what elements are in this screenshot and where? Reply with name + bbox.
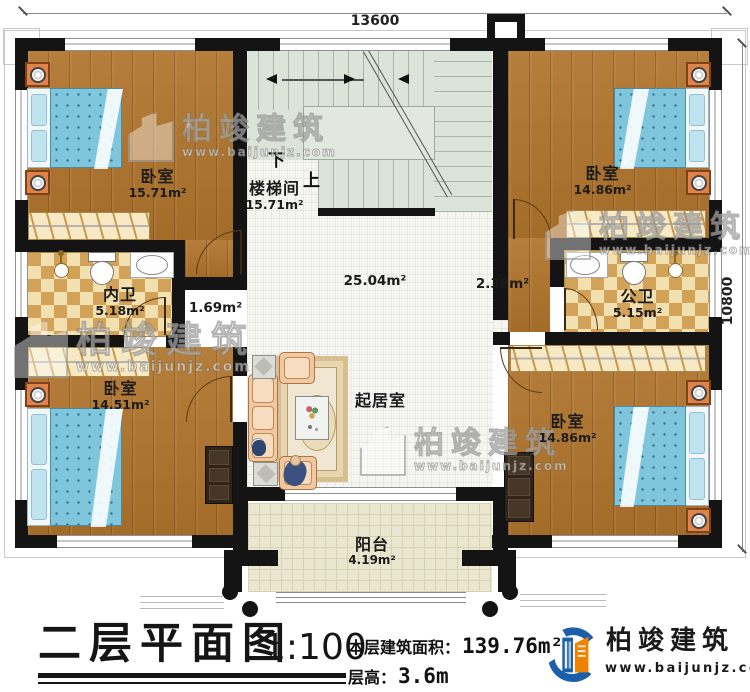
door-leaf [230, 376, 232, 422]
side-table [253, 462, 278, 486]
floor-plan-sheet: 13600 10800 下 上 [0, 0, 750, 692]
wall [15, 240, 175, 252]
window [709, 252, 722, 317]
shower-head-icon [54, 263, 69, 278]
nightstand [686, 508, 711, 533]
chimney [487, 14, 525, 46]
floor-height-label: 层高： [348, 664, 396, 688]
door-leaf [513, 199, 515, 239]
brand-url: www.baijunjz.com [605, 662, 750, 675]
area-label-hall-small: 1.69m² [183, 301, 248, 316]
floor-area-label: 本层建筑面积： [348, 634, 460, 658]
window [15, 252, 28, 317]
window [57, 535, 192, 548]
window [709, 390, 722, 500]
wardrobe [28, 212, 150, 240]
brand-name: 柏竣建筑 [606, 628, 734, 654]
floor-plan: 13600 10800 下 上 [0, 0, 750, 620]
terrace-lines [140, 596, 224, 610]
wall [233, 347, 247, 376]
sheet-title: 二层平面图 [38, 623, 293, 666]
person-head [290, 455, 301, 466]
lamp-icon [691, 175, 707, 191]
pier-ball [222, 584, 238, 600]
pier-ball [482, 601, 498, 617]
pier-ball [242, 601, 258, 617]
lamp-icon [30, 67, 46, 83]
wall [545, 332, 722, 345]
terrace-lines [520, 594, 606, 608]
nightstand [25, 62, 50, 87]
stair-arrow-icon [266, 74, 277, 84]
room-label-bath-public: 公卫 5.15m² [585, 288, 690, 320]
wardrobe [566, 210, 706, 238]
dimension-right-value: 10800 [720, 271, 736, 331]
room-label-bedroom-tr: 卧室 14.86m² [540, 165, 665, 197]
wall [564, 238, 710, 250]
lamp-icon [30, 387, 46, 403]
bed-pillows [685, 88, 709, 168]
wall [172, 277, 247, 290]
title-block: 二层平面图 1:100 本层建筑面积： 139.76m² 层高： 3.6m 柏竣… [0, 620, 750, 692]
bed [50, 88, 122, 168]
wall [456, 487, 508, 501]
bed [50, 408, 122, 526]
nightstand [686, 62, 711, 87]
lamp-icon [691, 513, 707, 529]
door-leaf [564, 288, 566, 330]
sink [136, 255, 168, 275]
bed-pillows [685, 406, 709, 506]
side-table [252, 355, 276, 379]
title-underline [38, 682, 346, 684]
stair-break-arrow-icon [398, 74, 409, 84]
nightstand [686, 170, 711, 195]
nightstand [25, 170, 50, 195]
dimension-top-value: 13600 [335, 13, 415, 29]
room-label-stairwell: 楼梯间 15.71m² [212, 180, 337, 212]
floor-area-row: 本层建筑面积： 139.76m² [348, 634, 563, 658]
lamp-icon [30, 175, 46, 191]
floor-height-value: 3.6m [398, 664, 449, 688]
person-figure [252, 440, 266, 456]
nightstand [686, 380, 711, 405]
dimension-tick [722, 6, 732, 16]
hall-floor [493, 320, 508, 332]
floor-height-row: 层高： 3.6m [348, 664, 449, 688]
lamp-icon [691, 385, 707, 401]
room-label-bedroom-br: 卧室 14.86m² [505, 413, 630, 445]
bed [614, 88, 686, 168]
wall [493, 332, 510, 345]
area-label-hall: 25.04m² [330, 274, 420, 289]
bed-pillows [27, 88, 51, 168]
wall [233, 487, 285, 501]
window [545, 38, 668, 51]
coffee-table [295, 396, 329, 440]
wall [166, 335, 175, 348]
tv-cabinet [504, 452, 534, 522]
room-label-bedroom-bl: 卧室 14.51m² [58, 380, 183, 412]
nightstand [25, 382, 50, 407]
brand-logo-icon [543, 624, 601, 684]
window [280, 38, 450, 51]
tv-cabinet [205, 446, 233, 504]
room-label-bath-inner: 内卫 5.18m² [70, 286, 170, 318]
dimension-line-right [742, 45, 743, 552]
room-label-balcony: 阳台 4.19m² [322, 536, 422, 567]
area-label-hall-right: 2.38m² [470, 277, 535, 292]
title-underline [38, 673, 346, 678]
door-leaf [240, 230, 242, 274]
door-leaf [500, 347, 542, 349]
shower-head-icon [668, 263, 683, 278]
dimension-tick [18, 6, 28, 16]
sink [570, 255, 600, 275]
window [65, 38, 195, 51]
bed-pillows [27, 408, 51, 526]
pier-ball [502, 584, 518, 600]
lamp-icon [691, 67, 707, 83]
stair-down-label: 下 [268, 146, 285, 171]
window [552, 535, 678, 548]
wall [550, 238, 564, 287]
armchair [279, 352, 315, 384]
stair-break-arrow-icon [344, 74, 355, 84]
wardrobe [28, 347, 150, 377]
room-label-living: 起居室 [338, 392, 423, 410]
balcony-railing [276, 592, 466, 607]
room-label-bedroom-tl: 卧室 15.71m² [95, 168, 220, 200]
